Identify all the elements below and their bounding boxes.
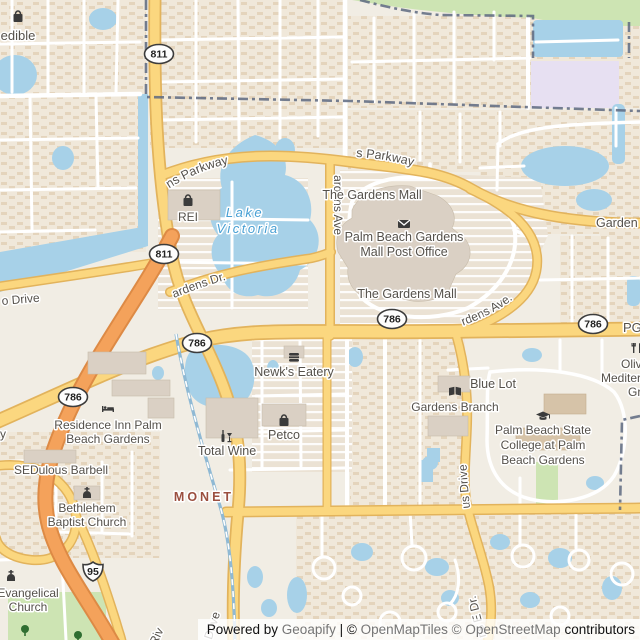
svg-text:95: 95 <box>87 566 99 578</box>
poi-label-olive-1: Oliv <box>621 357 640 371</box>
attribution-contributors: contributors <box>564 622 635 637</box>
neighborhood-label-monet: MONET <box>174 490 234 504</box>
road-label-y-cut: y <box>0 427 6 441</box>
svg-text:811: 811 <box>156 249 173 261</box>
openstreetmap-link[interactable]: OpenStreetMap <box>465 622 560 637</box>
poi-label-newks: Newk's Eatery <box>254 365 334 379</box>
poi-label-sedulous: SEDulous Barbell <box>14 463 108 477</box>
poi-label-edible: edible <box>1 28 36 43</box>
poi-label-gardens-branch: Gardens Branch <box>411 400 498 414</box>
poi-label-bethlehem-2: Baptist Church <box>48 515 127 529</box>
post-office-icon <box>398 220 410 228</box>
poi-label-gardens-mall-north: The Gardens Mall <box>322 188 421 202</box>
poi-label-post-office-1: Palm Beach Gardens <box>345 230 464 244</box>
attribution-separator: | © <box>340 622 357 637</box>
poi-label-bethlehem-1: Bethlehem <box>58 501 115 515</box>
poi-label-total-wine: Total Wine <box>198 444 256 458</box>
poi-label-gardens-mall-south: The Gardens Mall <box>357 287 456 301</box>
shield-786-a: 786 <box>183 334 212 353</box>
openmaptiles-link[interactable]: OpenMapTiles <box>361 622 448 637</box>
poi-label-college-3: Beach Gardens <box>501 453 584 467</box>
svg-text:786: 786 <box>584 319 602 331</box>
poi-label-blue-lot: Blue Lot <box>470 377 516 391</box>
poi-label-olive-3: Gr <box>628 385 640 399</box>
water-label-victoria: Victoria <box>216 221 279 236</box>
geoapify-link[interactable]: Geoapify <box>282 622 336 637</box>
poi-label-olive-2: Mediter <box>601 371 640 385</box>
poi-label-petco: Petco <box>268 428 300 442</box>
poi-label-college-2: College at Palm <box>501 438 586 452</box>
svg-text:786: 786 <box>383 314 401 326</box>
map-canvas[interactable]: 811 811 786 786 786 786 95 <box>0 0 640 640</box>
shield-786-d: 786 <box>579 315 608 334</box>
shield-786-b: 786 <box>59 388 88 407</box>
svg-text:786: 786 <box>64 392 82 404</box>
attribution-copyright: © <box>452 622 462 637</box>
poi-label-post-office-2: Mall Post Office <box>360 245 447 259</box>
school-area <box>531 61 619 108</box>
poi-label-rei: REI <box>178 210 198 224</box>
water-label-lake: Lake <box>226 205 264 220</box>
poi-label-residence-inn-2: Beach Gardens <box>66 432 149 446</box>
svg-text:786: 786 <box>188 338 206 350</box>
poi-label-college-1: Palm Beach State <box>495 423 591 437</box>
attribution-bar: Powered by Geoapify | © OpenMapTiles © O… <box>198 619 640 640</box>
shield-811-north: 811 <box>145 45 174 64</box>
shield-786-c: 786 <box>378 310 407 329</box>
fast-food-icon <box>289 353 299 362</box>
poi-label-residence-inn-1: Residence Inn Palm <box>54 418 161 432</box>
map-container: 811 811 786 786 786 786 95 <box>0 0 640 640</box>
svg-text:811: 811 <box>151 49 168 61</box>
road-label-pga-cut: PG <box>623 320 640 335</box>
road-label-gardens-parkway-cut: Garden <box>596 216 638 230</box>
poi-label-evangelical-1: Evangelical <box>0 586 59 600</box>
attribution-powered-by: Powered by <box>207 622 278 637</box>
shield-811-mid: 811 <box>150 245 179 264</box>
poi-label-evangelical-2: Church <box>9 600 48 614</box>
